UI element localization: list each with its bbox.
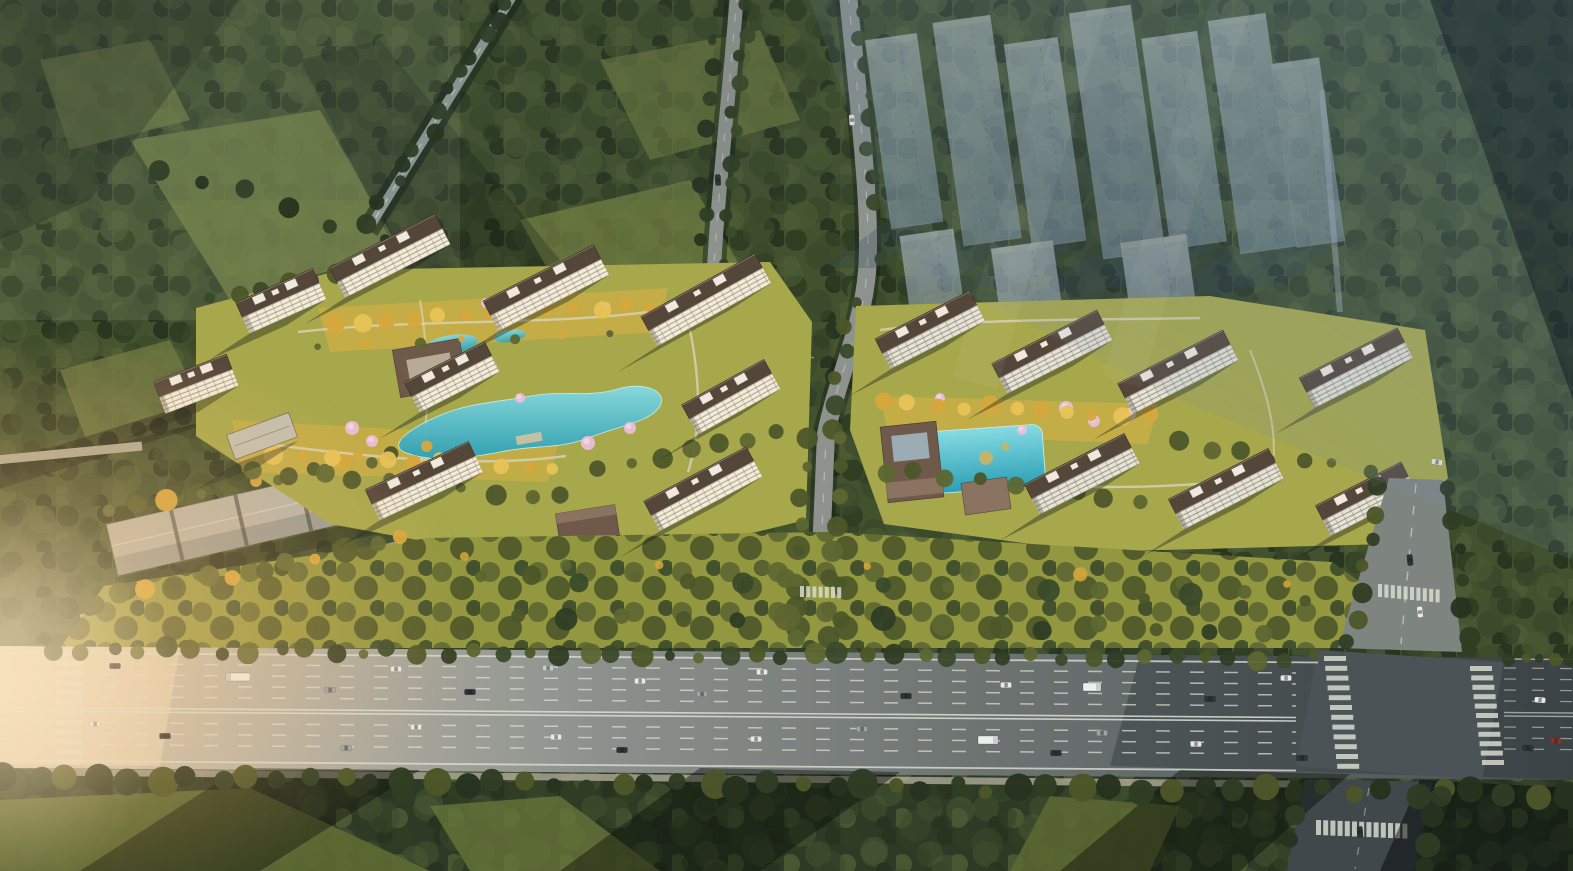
car-windshield <box>1284 676 1287 680</box>
crosswalk-stripe <box>1324 656 1346 661</box>
car <box>1534 697 1545 703</box>
tree <box>979 785 992 798</box>
car <box>1417 606 1424 618</box>
tree <box>1277 653 1292 668</box>
tree <box>1007 477 1025 495</box>
tree <box>1073 567 1087 581</box>
tree <box>1491 783 1515 807</box>
tree <box>1455 543 1466 554</box>
car <box>1297 755 1308 761</box>
tree <box>1060 405 1074 419</box>
crosswalk-stripe <box>1416 588 1420 601</box>
tree <box>1238 585 1252 599</box>
aerial-render: Aerial dusk rendering of a residential d… <box>0 0 1573 871</box>
crosswalk-stripe <box>1423 588 1427 601</box>
tree <box>1137 649 1152 664</box>
tree <box>1502 654 1514 666</box>
crosswalk-stripe <box>1345 821 1350 836</box>
tree <box>1346 786 1363 803</box>
crosswalk-stripe <box>1326 676 1348 681</box>
tree <box>1526 785 1551 810</box>
crosswalk-stripe <box>1472 685 1494 690</box>
tree <box>1169 648 1185 664</box>
tree <box>1456 574 1469 587</box>
car <box>1407 554 1414 566</box>
tree <box>699 207 714 222</box>
tree <box>1459 627 1480 648</box>
car-windshield <box>1300 756 1303 760</box>
tree <box>1281 831 1298 848</box>
crosswalk-stripe <box>1475 704 1497 709</box>
tree <box>1231 441 1250 460</box>
crosswalk-stripe <box>1391 585 1395 598</box>
tree <box>1420 803 1444 827</box>
tree <box>1200 651 1211 662</box>
car <box>1001 682 1012 688</box>
crosswalk-stripe <box>1384 585 1388 598</box>
crosswalk-stripe <box>1477 722 1499 727</box>
crosswalk-stripe <box>1336 754 1358 759</box>
tree <box>1033 621 1052 640</box>
lane-dash <box>1504 679 1573 680</box>
car-windshield <box>1100 731 1103 735</box>
tree <box>1522 654 1531 663</box>
tree <box>1284 785 1301 802</box>
crosswalk-stripe <box>1397 586 1401 599</box>
tree <box>1247 651 1267 671</box>
tree <box>1150 623 1163 636</box>
tree <box>1549 653 1562 666</box>
tree <box>1086 411 1096 421</box>
crosswalk-stripe <box>1352 822 1357 837</box>
tree <box>1091 582 1109 600</box>
tree <box>1442 511 1461 530</box>
tree <box>995 650 1010 665</box>
lane-dash <box>1504 738 1573 739</box>
car-windshield <box>1194 742 1197 746</box>
tree <box>1033 774 1056 797</box>
tree <box>1069 774 1097 802</box>
car <box>1281 675 1292 681</box>
crosswalk-stripe <box>1338 821 1343 836</box>
tree <box>990 616 1013 639</box>
crosswalk-stripe <box>1330 821 1335 836</box>
car <box>1550 738 1561 744</box>
crosswalk-stripe <box>1481 751 1503 756</box>
crosswalk-stripe <box>1429 589 1433 602</box>
tree <box>1196 776 1216 796</box>
crosswalk-stripe <box>1474 694 1496 699</box>
tree <box>1086 650 1103 667</box>
car-windshield <box>1208 697 1211 701</box>
crosswalk-stripe <box>1480 741 1502 746</box>
tree <box>1204 442 1222 460</box>
crosswalk-stripe <box>1328 685 1350 690</box>
crosswalk-stripe <box>1471 675 1493 680</box>
sunset-hotspot <box>0 470 360 871</box>
crosswalk-stripe <box>1323 820 1328 835</box>
tree <box>1096 774 1121 799</box>
tree <box>1202 624 1218 640</box>
tree <box>1160 779 1184 803</box>
tree <box>1339 634 1354 649</box>
crosswalk-stripe <box>1332 725 1354 730</box>
car-windshield <box>1358 830 1363 834</box>
tree <box>1255 625 1272 642</box>
tree <box>1179 583 1203 607</box>
tree <box>1253 774 1280 801</box>
crosswalk-stripe <box>1334 734 1356 739</box>
crosswalk-stripe <box>1331 715 1353 720</box>
tree <box>1107 650 1125 668</box>
truck <box>1083 683 1101 691</box>
crosswalk-stripe <box>1325 666 1347 671</box>
aerial-render-canvas <box>0 0 1573 871</box>
car <box>1051 750 1062 756</box>
crosswalk-stripe <box>1410 587 1414 600</box>
tree <box>1315 779 1331 795</box>
car-windshield <box>1004 683 1007 687</box>
tree <box>1090 616 1107 633</box>
tree <box>1274 858 1286 870</box>
crosswalk-stripe <box>1366 822 1371 837</box>
blossom-highlight <box>1019 427 1024 432</box>
tree <box>1005 774 1033 802</box>
car-windshield <box>1418 610 1423 614</box>
tree <box>1285 805 1305 825</box>
crosswalk-stripe <box>1436 589 1440 602</box>
tree <box>1133 495 1147 509</box>
crosswalk-stripe <box>1335 744 1357 749</box>
tree <box>1169 431 1189 451</box>
truck-cab <box>1096 684 1101 691</box>
tree <box>1300 595 1311 606</box>
tree <box>1297 453 1312 468</box>
top-tint <box>0 0 1573 200</box>
tree <box>1349 611 1368 630</box>
tree <box>1309 650 1319 660</box>
tree <box>1283 580 1290 587</box>
crosswalk-stripe <box>1482 760 1504 765</box>
tree <box>1221 779 1244 802</box>
tree <box>1366 533 1379 546</box>
car <box>1097 730 1108 736</box>
tree <box>1370 779 1391 800</box>
tree <box>1037 579 1060 602</box>
crosswalk-stripe <box>1337 764 1359 769</box>
car-windshield <box>1554 739 1558 744</box>
crosswalk-stripe <box>1478 732 1500 737</box>
tree <box>1023 647 1037 661</box>
tree <box>1139 593 1150 604</box>
lane-dash <box>1504 690 1573 691</box>
lane-dash <box>1504 749 1573 750</box>
tree <box>1033 402 1050 419</box>
car-windshield <box>1526 746 1530 751</box>
car <box>1357 826 1363 837</box>
crosswalk-stripe <box>1316 820 1321 835</box>
car <box>1522 745 1533 751</box>
crosswalk-stripe <box>1374 822 1379 837</box>
crosswalk-stripe <box>1388 823 1393 838</box>
tree <box>1457 776 1483 802</box>
lane-dash <box>1504 668 1573 669</box>
tree <box>279 197 300 218</box>
crosswalk-stripe <box>1381 823 1386 838</box>
tree <box>1055 654 1067 666</box>
crosswalk-stripe <box>1404 586 1408 599</box>
car <box>1205 696 1216 702</box>
tree <box>1415 833 1440 858</box>
tree <box>1094 489 1113 508</box>
tree <box>1352 583 1372 603</box>
tree <box>1220 650 1236 666</box>
tree <box>1011 402 1025 416</box>
car <box>1191 741 1202 747</box>
tree <box>1129 780 1155 806</box>
truck-cab <box>993 737 998 744</box>
car-windshield <box>1054 751 1057 755</box>
crosswalk-stripe <box>1329 695 1351 700</box>
truck <box>978 736 998 744</box>
crosswalk-stripe <box>1470 666 1492 671</box>
lane-dash <box>1504 727 1573 728</box>
median-line <box>1504 713 1573 714</box>
crosswalk-stripe <box>1476 713 1498 718</box>
tree <box>1535 654 1544 663</box>
tree <box>1366 506 1384 524</box>
crosswalk-stripe <box>1330 705 1352 710</box>
car-windshield <box>1408 558 1413 562</box>
median-line <box>1504 716 1573 717</box>
crosswalk-stripe <box>1378 584 1382 597</box>
tree <box>1356 559 1369 572</box>
car-windshield <box>1538 698 1542 703</box>
tree <box>1451 597 1472 618</box>
